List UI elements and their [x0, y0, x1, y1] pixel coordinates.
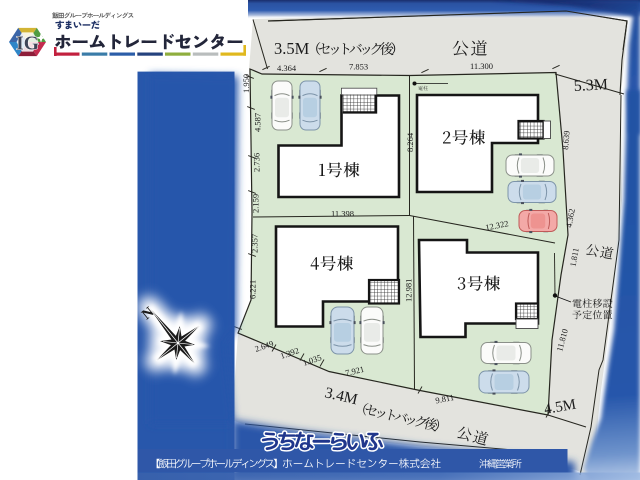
- svg-text:6.221: 6.221: [248, 280, 258, 299]
- svg-text:11.398: 11.398: [331, 209, 354, 219]
- svg-text:1.950: 1.950: [241, 74, 251, 93]
- svg-text:2.159: 2.159: [251, 194, 261, 213]
- svg-text:11.300: 11.300: [470, 61, 493, 71]
- svg-text:5.3M: 5.3M: [573, 76, 608, 95]
- svg-text:7.853: 7.853: [349, 62, 368, 72]
- svg-text:IG: IG: [16, 34, 39, 55]
- svg-text:8.639: 8.639: [560, 130, 572, 150]
- svg-text:4.587: 4.587: [253, 113, 263, 132]
- svg-text:12.981: 12.981: [404, 279, 414, 302]
- svg-text:8.264: 8.264: [405, 132, 415, 152]
- svg-text:4.364: 4.364: [277, 63, 297, 73]
- svg-text:2.736: 2.736: [252, 153, 262, 172]
- svg-text:3.5M: 3.5M: [274, 39, 310, 58]
- svg-text:2.357: 2.357: [250, 234, 260, 253]
